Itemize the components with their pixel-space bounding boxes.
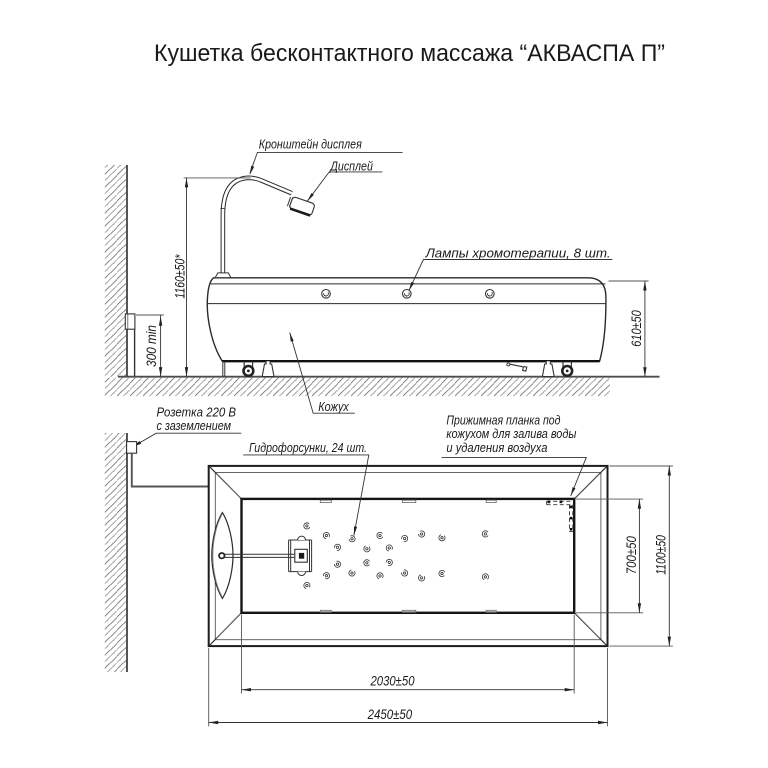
svg-text:610±50: 610±50 bbox=[629, 310, 644, 347]
svg-text:Кронштейн дисплея: Кронштейн дисплея bbox=[259, 137, 362, 152]
svg-text:и удаления воздуха: и удаления воздуха bbox=[446, 440, 547, 455]
svg-text:Лампы хромотерапии, 8 шт.: Лампы хромотерапии, 8 шт. bbox=[425, 245, 611, 260]
svg-text:2450±50: 2450±50 bbox=[367, 707, 413, 722]
svg-text:1100±50: 1100±50 bbox=[654, 535, 669, 575]
svg-text:Кушетка бесконтактного массажа: Кушетка бесконтактного массажа “АКВАСПА … bbox=[154, 40, 665, 67]
svg-text:Дисплей: Дисплей bbox=[329, 158, 373, 173]
svg-text:300 min: 300 min bbox=[144, 325, 159, 367]
svg-text:Кожух: Кожух bbox=[318, 399, 349, 414]
svg-text:с заземлением: с заземлением bbox=[157, 418, 232, 433]
svg-text:1160±50*: 1160±50* bbox=[172, 254, 187, 299]
svg-text:2030±50: 2030±50 bbox=[370, 673, 415, 688]
svg-text:700±50: 700±50 bbox=[624, 536, 639, 574]
svg-text:Гидрофорсунки, 24 шт.: Гидрофорсунки, 24 шт. bbox=[249, 440, 367, 455]
